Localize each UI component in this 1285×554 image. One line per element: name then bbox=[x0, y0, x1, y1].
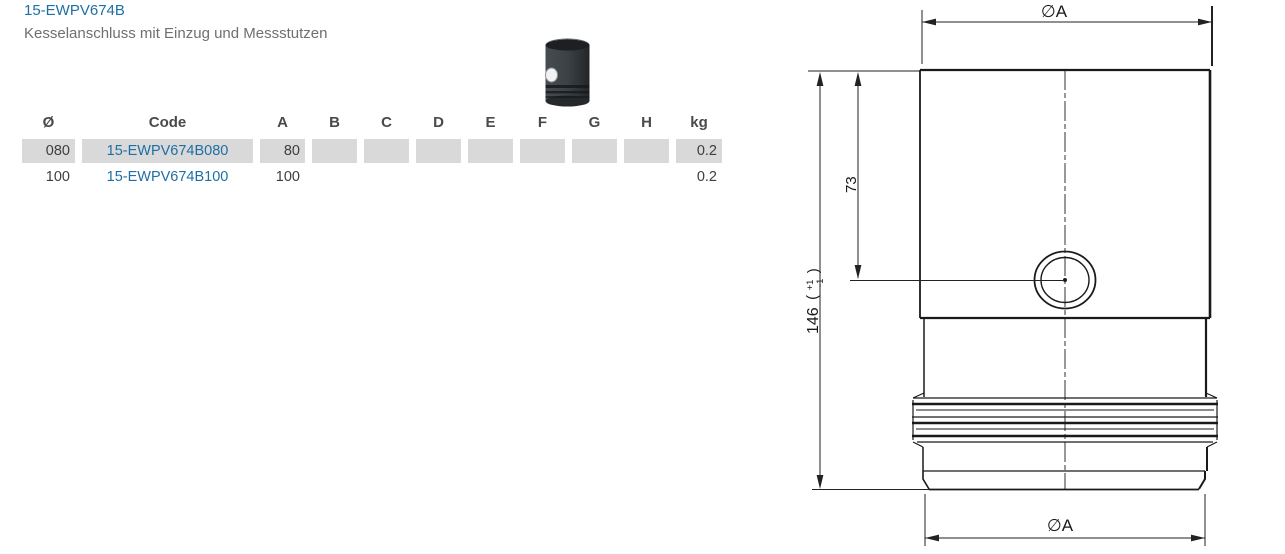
dim-diameter-bottom-label: ∅A bbox=[1047, 516, 1074, 535]
dim-diameter-top-label: ∅A bbox=[1041, 2, 1068, 21]
cell-a-row2: 100 bbox=[260, 165, 305, 189]
technical-drawing: ∅A ∅A 73 146 ( +1 -1 ) bbox=[0, 0, 1285, 554]
cell-ø-row1: 080 bbox=[22, 139, 75, 163]
pipe-outline bbox=[912, 70, 1218, 490]
measuring-nozzle-circle bbox=[1035, 252, 1096, 309]
col-header-h: H bbox=[624, 110, 669, 137]
cell-b-row1 bbox=[312, 139, 357, 163]
cell-h-row2 bbox=[624, 165, 669, 189]
cell-kg-row2: 0.2 bbox=[676, 165, 722, 189]
cell-a-row1: 80 bbox=[260, 139, 305, 163]
col-header-f: F bbox=[520, 110, 565, 137]
dimension-arrowheads bbox=[817, 19, 1212, 542]
catalog-page: 15-EWPV674B Kesselanschluss mit Einzug u… bbox=[0, 0, 1285, 554]
cell-d-row1 bbox=[416, 139, 461, 163]
col-header-g: G bbox=[572, 110, 617, 137]
product-code-link[interactable]: 15-EWPV674B100 bbox=[82, 165, 253, 189]
dim-nozzle-height-label: 73 bbox=[843, 176, 860, 193]
cell-b-row2 bbox=[312, 165, 357, 189]
col-header-ø: Ø bbox=[22, 110, 75, 137]
cell-kg-row1: 0.2 bbox=[676, 139, 722, 163]
cell-ø-row2: 100 bbox=[22, 165, 75, 189]
cell-g-row1 bbox=[572, 139, 617, 163]
dim-total-height-label: 146 ( +1 -1 ) bbox=[800, 268, 827, 334]
cell-f-row1 bbox=[520, 139, 565, 163]
col-header-e: E bbox=[468, 110, 513, 137]
pipe-body-illustration bbox=[546, 39, 590, 107]
cell-c-row2 bbox=[364, 165, 409, 189]
col-header-d: D bbox=[416, 110, 461, 137]
dimension-lines bbox=[808, 6, 1212, 546]
cell-e-row2 bbox=[468, 165, 513, 189]
product-code-link[interactable]: 15-EWPV674B080 bbox=[82, 139, 253, 163]
measuring-nozzle-hole bbox=[546, 68, 558, 82]
cell-h-row1 bbox=[624, 139, 669, 163]
cell-d-row2 bbox=[416, 165, 461, 189]
product-code-title[interactable]: 15-EWPV674B bbox=[24, 2, 125, 20]
cell-e-row1 bbox=[468, 139, 513, 163]
cell-g-row2 bbox=[572, 165, 617, 189]
product-table: ØCodeABCDEFGHkg08015-EWPV674B080800.2100… bbox=[22, 110, 722, 189]
col-header-code: Code bbox=[82, 110, 253, 137]
col-header-c: C bbox=[364, 110, 409, 137]
col-header-kg: kg bbox=[676, 110, 722, 137]
product-description: Kesselanschluss mit Einzug und Messstutz… bbox=[24, 25, 327, 43]
cell-c-row1 bbox=[364, 139, 409, 163]
col-header-b: B bbox=[312, 110, 357, 137]
product-photo bbox=[541, 38, 595, 110]
cell-f-row2 bbox=[520, 165, 565, 189]
col-header-a: A bbox=[260, 110, 305, 137]
